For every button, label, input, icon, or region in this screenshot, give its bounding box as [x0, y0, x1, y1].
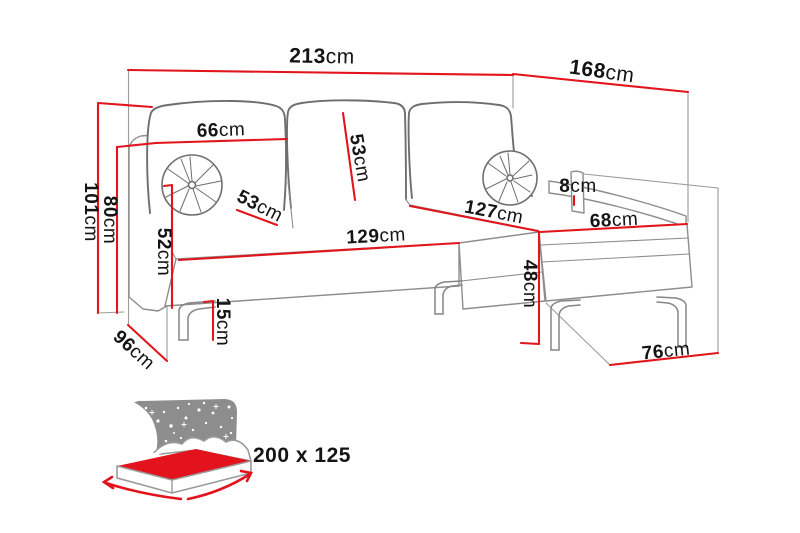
dim-label-total-height: 101cm — [81, 182, 102, 242]
dim-label-total-width: 213cm — [289, 44, 355, 68]
dim-label-chaise-seat-width: 68cm — [589, 208, 639, 232]
dim-label-chaise-floor-width: 76cm — [641, 338, 691, 364]
sofa-dimension-diagram: 213cm 168cm 66cm 53cm 53cm 101cm 80cm 52… — [0, 0, 800, 533]
dim-line-total-width — [128, 70, 513, 75]
round-pillow-right — [483, 151, 537, 205]
dim-label-depth-floor: 96cm — [109, 326, 159, 374]
dim-label-seat-front-width: 129cm — [346, 224, 407, 248]
dim-label-leg-height: 15cm — [213, 298, 234, 346]
sleeping-function-icon: 200 x 125 — [104, 398, 351, 499]
dim-label-armrest-height: 80cm — [100, 196, 121, 244]
dim-label-armrest-panel-height: 52cm — [154, 228, 175, 276]
sofa-bed-icon — [104, 437, 251, 499]
dim-label-side-lip-height: 8cm — [559, 176, 596, 197]
dim-label-chaise-base-height: 48cm — [520, 260, 541, 308]
leg-chaise-left — [551, 300, 580, 350]
dim-label-chaise-length: 168cm — [568, 55, 636, 87]
diagram-canvas: 213cm 168cm 66cm 53cm 53cm 101cm 80cm 52… — [0, 0, 800, 533]
dim-label-backrest-width: 66cm — [196, 119, 245, 142]
back-cushion-2 — [287, 100, 406, 208]
sleeping-size-label: 200 x 125 — [253, 444, 351, 467]
leg-front-left — [179, 301, 215, 340]
